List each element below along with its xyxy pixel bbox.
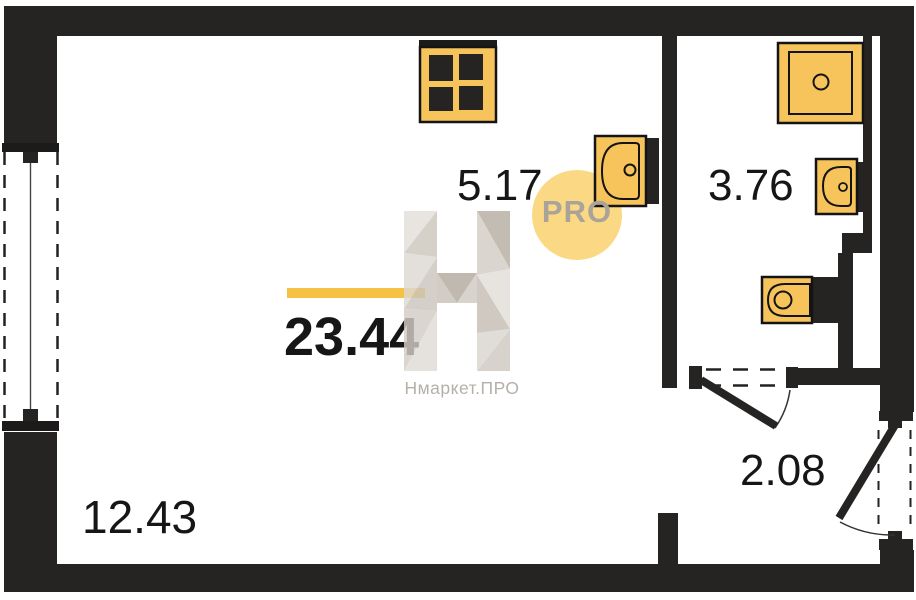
floor-plan: 23.44 5.17 3.76 12.43 2.08 PRO Нмаркет. <box>0 0 916 600</box>
area-label-living: 12.43 <box>82 494 197 540</box>
wall-bathroom-partition <box>662 36 677 388</box>
stove-icon <box>419 40 497 122</box>
brand-logo-icon <box>404 211 510 371</box>
window <box>2 143 59 431</box>
stove-burner <box>429 55 453 81</box>
brand-name-text: Нмаркет.ПРО <box>403 380 521 398</box>
toilet-icon <box>762 277 838 323</box>
shower-body <box>778 43 863 123</box>
shower-icon <box>778 43 863 123</box>
stove-burner <box>429 87 453 111</box>
wall-left-upper <box>4 36 57 143</box>
bathroom-door-post-left <box>689 366 702 389</box>
pro-badge-text: PRO <box>532 196 622 227</box>
area-label-kitchen: 5.17 <box>457 164 543 208</box>
area-label-hallway: 2.08 <box>740 449 826 493</box>
entry-door-arc <box>840 522 895 535</box>
window-sill-bottom <box>2 421 59 431</box>
stove-burner <box>459 54 483 80</box>
logo-right-bar <box>477 211 510 371</box>
window-frame-bottom <box>23 409 38 421</box>
area-label-bathroom: 3.76 <box>708 164 794 208</box>
entry-door <box>839 411 913 550</box>
logo-left-bar <box>404 211 437 371</box>
bathroom-door-post-right <box>786 367 798 388</box>
wall-left-lower <box>4 432 57 564</box>
wall-right-upper <box>880 36 914 412</box>
wall-stub-hallway <box>658 513 678 564</box>
stove-burner <box>459 86 483 110</box>
wall-shaft-lower <box>838 253 853 371</box>
bathroom-sink-icon <box>816 159 865 214</box>
toilet-tank <box>811 277 838 323</box>
area-label-total: 23.44 <box>284 310 419 364</box>
entry-door-plate-bottom <box>879 539 913 550</box>
wall-bottom <box>4 564 914 592</box>
bathroom-door <box>689 366 798 428</box>
entry-door-plate-top <box>879 411 913 421</box>
entry-door-leaf <box>839 425 895 518</box>
wall-right-lower <box>880 550 914 592</box>
window-sill-top <box>2 143 59 152</box>
wall-shaft-step <box>842 233 872 253</box>
bathroom-door-leaf <box>701 380 776 426</box>
window-frame-top <box>23 152 38 163</box>
wall-top <box>4 6 914 36</box>
logo-crossbar <box>437 273 477 303</box>
